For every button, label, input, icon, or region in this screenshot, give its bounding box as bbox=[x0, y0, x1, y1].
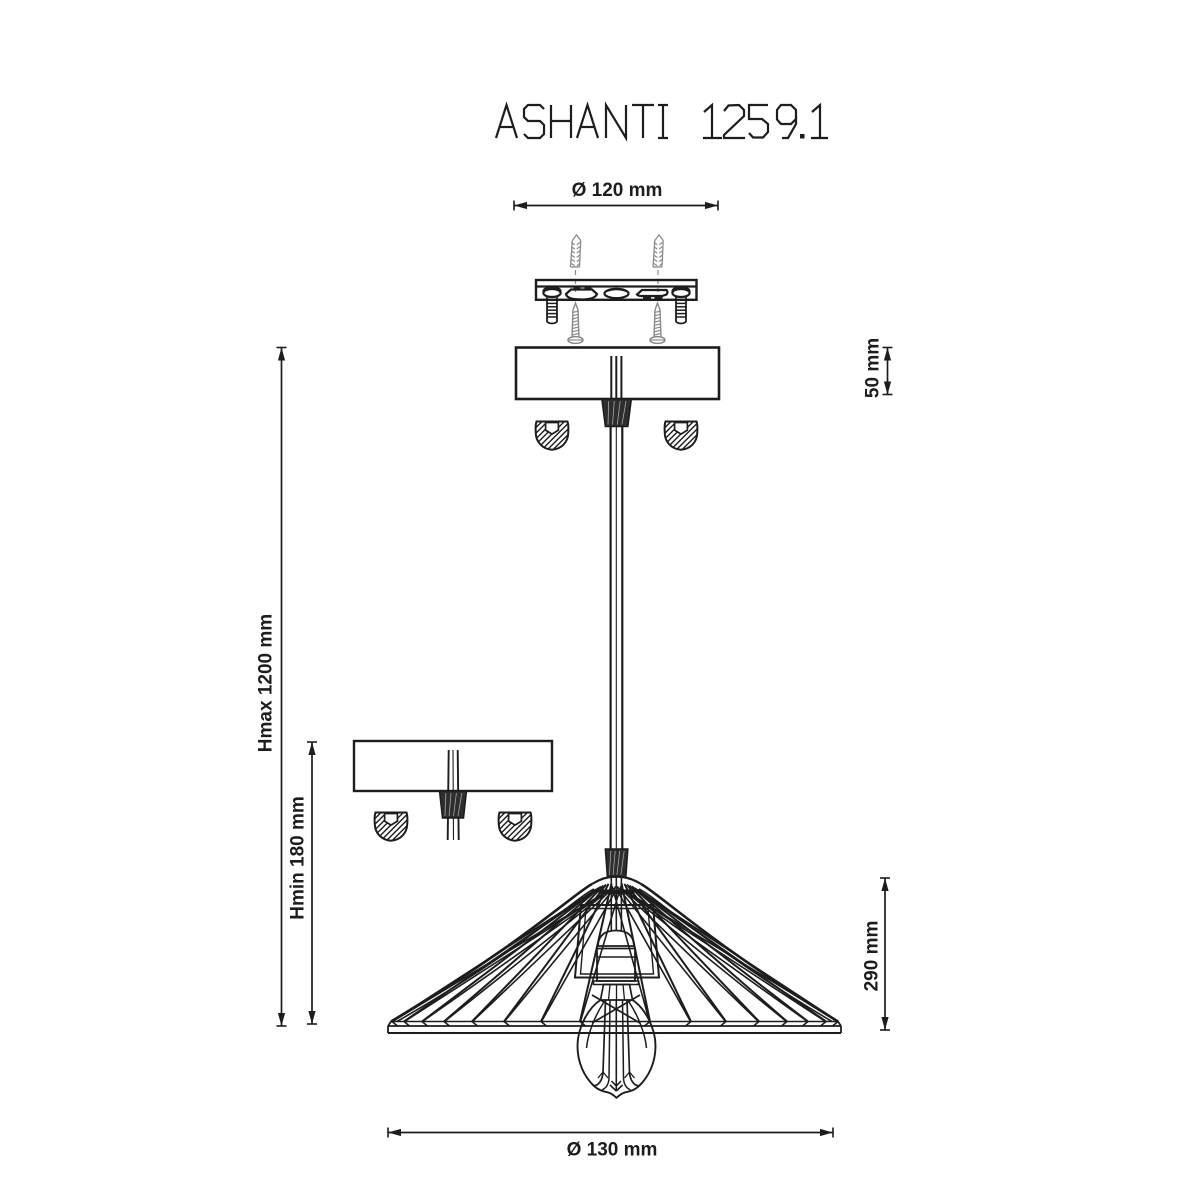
svg-text:Hmax 1200 mm: Hmax 1200 mm bbox=[256, 614, 277, 752]
svg-text:290 mm: 290 mm bbox=[862, 921, 883, 992]
svg-text:50 mm: 50 mm bbox=[863, 338, 884, 398]
svg-text:Hmin 180 mm: Hmin 180 mm bbox=[288, 796, 309, 920]
svg-text:Ø 120 mm: Ø 120 mm bbox=[572, 180, 663, 201]
svg-text:Ø 130 mm: Ø 130 mm bbox=[567, 1140, 658, 1161]
